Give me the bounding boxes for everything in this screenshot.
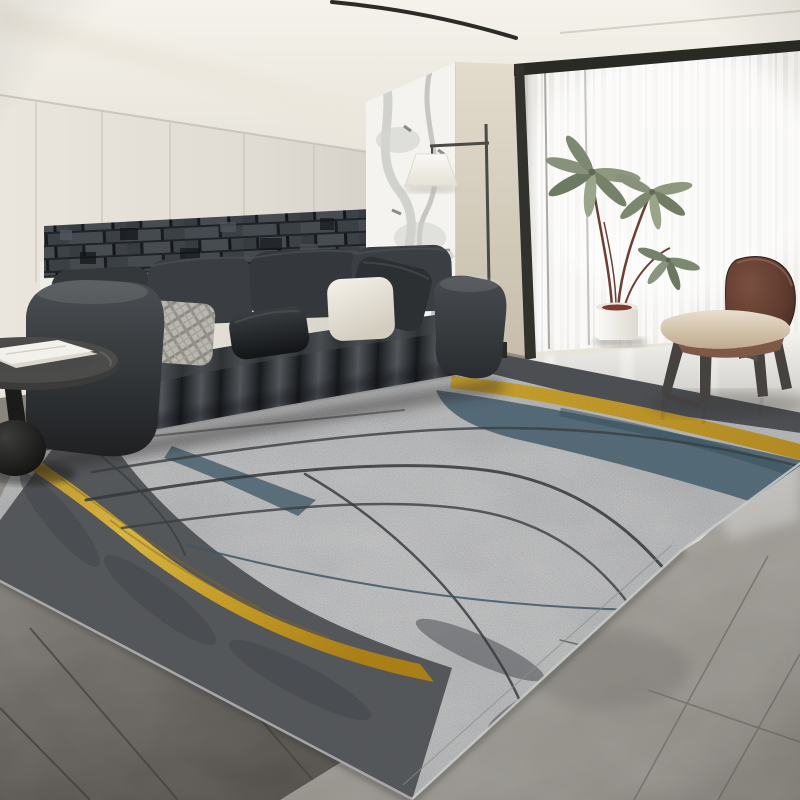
vignette [0, 0, 800, 800]
living-room-scene [0, 0, 800, 800]
